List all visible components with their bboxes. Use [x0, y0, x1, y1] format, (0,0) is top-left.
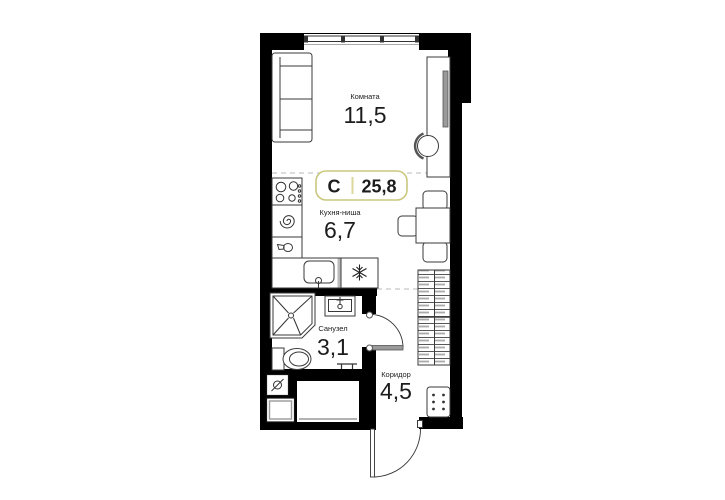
washing-machine	[267, 398, 295, 422]
wall-bottom-right	[419, 417, 463, 429]
window-post-right	[415, 36, 419, 43]
entry-door-leaf	[371, 429, 375, 477]
bathroom-door-hinge-top	[367, 312, 373, 318]
window-mullion-1	[341, 36, 345, 43]
dining-set	[398, 191, 450, 262]
washbasin	[325, 296, 355, 316]
window-post-left	[304, 36, 308, 43]
label-kitchen-niche: Кухня-ниша	[319, 208, 361, 217]
hall-wardrobe	[418, 270, 450, 365]
dining-table	[416, 208, 450, 243]
dining-chair-top	[423, 191, 447, 210]
wall-right-upper	[448, 50, 471, 103]
shower	[270, 293, 315, 338]
wall-right	[450, 102, 462, 429]
wardrobe-door-panel	[443, 71, 448, 127]
counter-divider	[338, 259, 342, 288]
wardrobe-desk	[427, 57, 450, 177]
sofa	[272, 53, 312, 142]
badge-total-area: 25,8	[361, 177, 396, 197]
water-meter-box	[267, 375, 289, 396]
window-mullion-2	[380, 36, 384, 43]
stove	[272, 178, 302, 205]
area-hallway: 4,5	[380, 378, 412, 404]
floorplan-canvas: С 25,8 Комната 11,5 Кухня-ниша 6,7 Сануз…	[0, 0, 725, 500]
window	[304, 34, 419, 45]
label-living-room: Комната	[350, 92, 380, 101]
shoe-cabinet	[427, 387, 450, 417]
entry-door	[371, 421, 423, 478]
area-living-room: 11,5	[343, 102, 386, 128]
bathroom-door	[367, 312, 404, 351]
bathroom-door-swing-arc	[370, 314, 404, 348]
label-bathroom: Санузел	[318, 324, 347, 333]
toilet-cistern	[272, 348, 284, 370]
bathroom-door-hinge-bottom	[367, 345, 373, 351]
desk-chair-seat	[418, 136, 439, 157]
wall-top-right	[419, 33, 471, 50]
kettle-shelf	[272, 237, 302, 260]
dining-chair-bottom	[423, 242, 447, 262]
area-kitchen-niche: 6,7	[324, 217, 356, 243]
badge-type-label: С	[328, 177, 341, 197]
bathroom-door-leaf	[371, 346, 403, 351]
entry-door-frame-mark	[418, 421, 423, 428]
kitchen-counter-bottom	[272, 258, 378, 288]
storage-niche	[297, 381, 359, 422]
shoe-cabinet-body	[427, 387, 450, 417]
entry-door-swing-arc	[375, 429, 421, 477]
wall-top-left	[260, 33, 304, 50]
apartment-type-badge: С 25,8	[316, 171, 407, 200]
dining-chair-left	[398, 216, 418, 236]
kitchen-counter-left	[272, 178, 302, 260]
area-bathroom: 3,1	[317, 334, 349, 360]
floorplan-svg: С 25,8 Комната 11,5 Кухня-ниша 6,7 Сануз…	[0, 0, 725, 500]
storage-niche-area	[297, 381, 359, 422]
toilet	[272, 348, 311, 370]
wall-bath-right-top	[362, 288, 376, 314]
towel-rail-icon	[337, 364, 357, 369]
